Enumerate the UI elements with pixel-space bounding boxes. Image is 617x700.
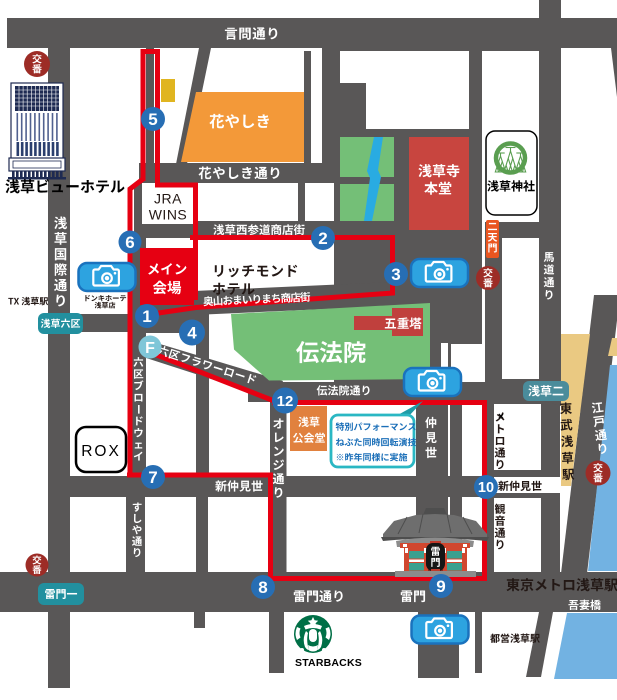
svg-text:STARBACKS: STARBACKS: [295, 657, 362, 669]
svg-text:6: 6: [125, 233, 134, 252]
svg-text:7: 7: [148, 468, 157, 487]
svg-text:4: 4: [187, 324, 197, 343]
svg-text:JRA: JRA: [154, 191, 182, 207]
svg-text:8: 8: [258, 578, 267, 597]
svg-text:×: ×: [498, 412, 504, 423]
svg-text:10: 10: [478, 480, 494, 496]
svg-text:12: 12: [277, 393, 294, 410]
svg-text:2: 2: [318, 229, 327, 248]
svg-text:3: 3: [391, 265, 400, 284]
svg-text:1: 1: [142, 307, 151, 326]
svg-text:9: 9: [436, 577, 445, 596]
svg-text:5: 5: [148, 110, 157, 129]
svg-text:F: F: [145, 340, 155, 357]
svg-text:WINS: WINS: [149, 207, 188, 223]
svg-text:ROX: ROX: [81, 443, 121, 460]
